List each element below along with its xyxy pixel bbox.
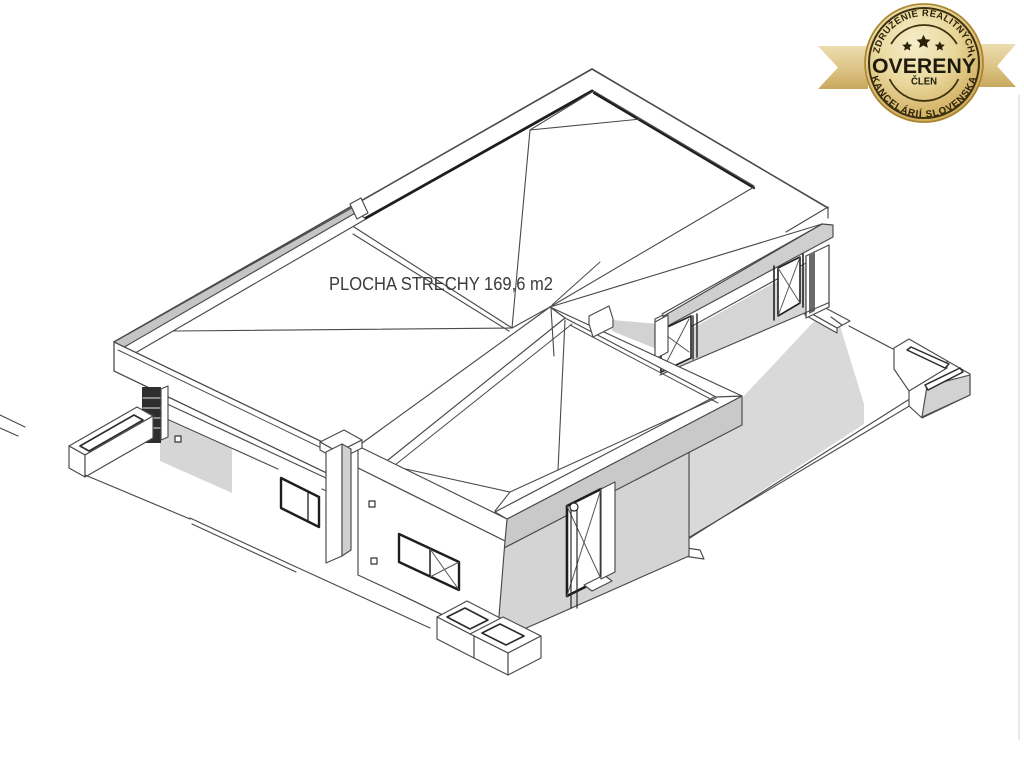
svg-text:OVERENÝ: OVERENÝ xyxy=(872,54,976,78)
svg-text:PLOCHA STRECHY 169,6 m2: PLOCHA STRECHY 169,6 m2 xyxy=(329,274,553,294)
svg-text:ČLEN: ČLEN xyxy=(911,75,937,88)
